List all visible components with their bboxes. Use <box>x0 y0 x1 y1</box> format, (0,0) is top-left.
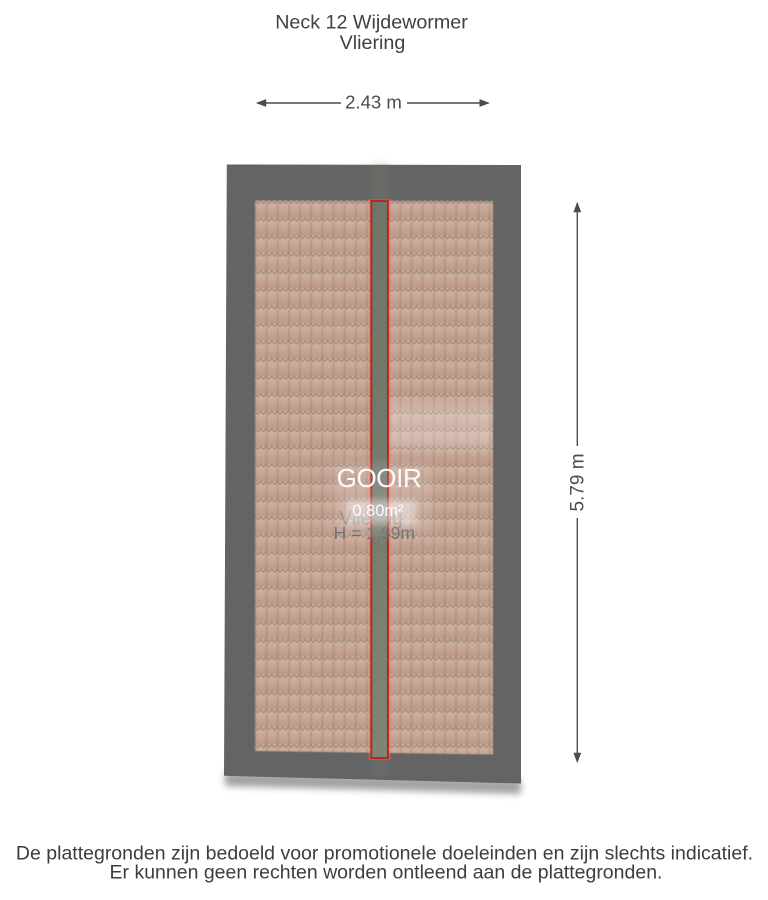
svg-text:Er kunnen geen rechten worden: Er kunnen geen rechten worden ontleend a… <box>110 861 663 883</box>
svg-text:Vliering: Vliering <box>340 32 406 54</box>
svg-text:GOOIR: GOOIR <box>337 463 422 493</box>
svg-text:2.43 m: 2.43 m <box>345 91 402 112</box>
svg-text:Neck 12 Wijdewormer: Neck 12 Wijdewormer <box>275 11 468 33</box>
svg-text:5.79 m: 5.79 m <box>568 453 589 511</box>
svg-text:0.80m²: 0.80m² <box>352 502 404 520</box>
